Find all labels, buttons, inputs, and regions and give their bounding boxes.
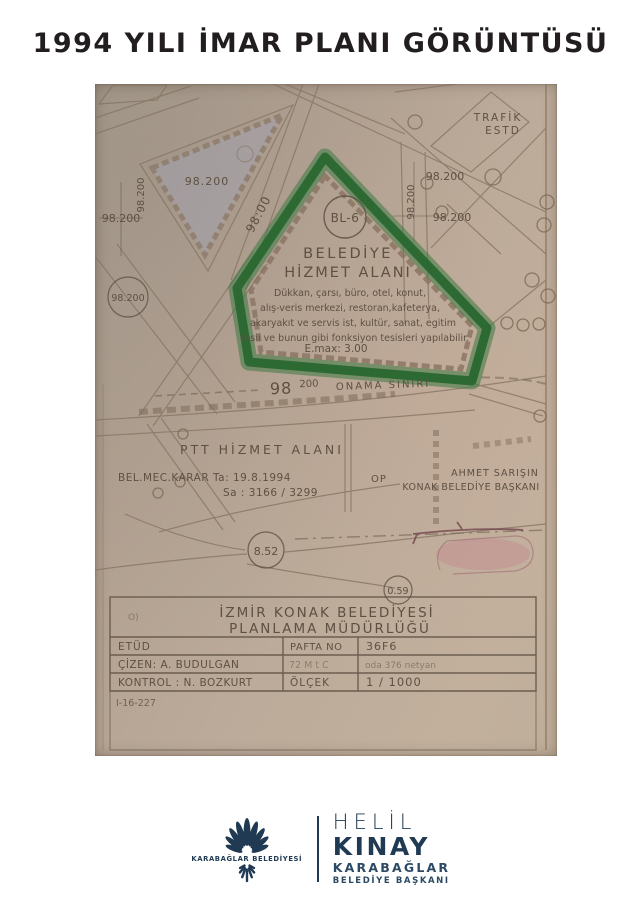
- titleblock-header2: PLANLAMA MÜDÜRLÜĞÜ: [229, 619, 431, 637]
- onama-elevation-big: 98: [270, 378, 293, 398]
- titleblock-pafta-label: PAFTA NO: [290, 642, 343, 653]
- titleblock-pafta-value: 36F6: [366, 640, 397, 653]
- zone-code: BL-6: [331, 211, 360, 225]
- municipality-name: KARABAĞLAR BELEDİYESİ: [191, 855, 302, 863]
- zoning-plan-drawing: BL-6 BELEDİYE HİZMET ALANI Dükkan, çarsı…: [95, 84, 557, 756]
- titleblock-header1: İZMİR KONAK BELEDİYESİ: [219, 603, 434, 621]
- trafik-line2: ESTD: [485, 125, 521, 137]
- zone-body-line3: akaryakıt ve servis ist, kultür, sanat, …: [250, 318, 456, 329]
- op-label: OP: [371, 474, 387, 485]
- titleblock-right-note: oda 376 netyan: [365, 661, 436, 671]
- ptt-sayi: Sa : 3166 / 3299: [223, 487, 318, 499]
- municipality-logo: KARABAĞLAR BELEDİYESİ: [191, 814, 303, 884]
- titleblock-etud: ETÜD: [118, 640, 151, 653]
- mayor-brand-text: HELİL KINAY KARABAĞLAR BELEDİYE BAŞKANI: [333, 812, 450, 885]
- spot-height-059: 0.59: [387, 586, 408, 597]
- spot-height-852: 8.52: [254, 545, 279, 558]
- title-block: İZMİR KONAK BELEDİYESİ PLANLAMA MÜDÜRLÜĞ…: [110, 597, 536, 750]
- ptt-block: PTT HİZMET ALANI BEL.MEC.KARAR Ta: 19.8.…: [118, 442, 387, 499]
- titleblock-olcek-label: ÖLÇEK: [290, 676, 330, 689]
- ptt-karar: BEL.MEC.KARAR Ta: 19.8.1994: [118, 472, 291, 484]
- mayor-district: KARABAĞLAR: [333, 862, 450, 875]
- logo-petal-fan-icon: [201, 814, 293, 854]
- elevation-label: 98.200: [433, 211, 472, 224]
- titleblock-mid-note: 72 M t C: [289, 660, 329, 671]
- elevation-label: 98.200: [136, 178, 147, 213]
- mayor-first-name: HELİL: [333, 812, 450, 833]
- mayor-title: KONAK BELEDİYE BAŞKANI: [402, 482, 539, 493]
- zoning-plan-photo: BL-6 BELEDİYE HİZMET ALANI Dükkan, çarsı…: [95, 84, 557, 756]
- elevation-label: 98.200: [406, 185, 417, 220]
- mayor-block: AHMET SARIŞIN KONAK BELEDİYE BAŞKANI: [402, 468, 539, 493]
- titleblock-kontrol: KONTROL : N. BOZKURT: [118, 677, 253, 689]
- mayor-name: AHMET SARIŞIN: [451, 468, 539, 479]
- onama-elevation-small: 200: [299, 379, 318, 391]
- page-title: 1994 YILI İMAR PLANI GÖRÜNTÜSÜ: [0, 28, 641, 59]
- trafik-line1: TRAFİK: [473, 111, 523, 124]
- zone-body-line2: alış-veris merkezi, restoran,kafeterya,: [260, 303, 440, 314]
- elevation-label: 98.200: [426, 170, 465, 183]
- onama-label: ONAMA SINIRI: [336, 379, 431, 393]
- footer-brand: KARABAĞLAR BELEDİYESİ HELİL KINAY KARABA…: [0, 812, 641, 885]
- elevation-label: 98.200: [185, 175, 230, 188]
- titleblock-stamp: O): [128, 613, 139, 623]
- mayor-last-name: KINAY: [333, 834, 450, 859]
- brand-divider: [317, 816, 319, 882]
- zone-title-line2: HİZMET ALANI: [284, 263, 412, 281]
- elevation-label: 98.200: [111, 293, 144, 304]
- titleblock-olcek-value: 1 / 1000: [366, 675, 422, 689]
- zone-emax: E.max: 3.00: [304, 343, 367, 355]
- zone-title-line1: BELEDİYE: [303, 244, 393, 262]
- titleblock-cizen: ÇİZEN: A. BUDULGAN: [118, 658, 239, 671]
- mayor-title-text: BELEDİYE BAŞKANI: [333, 877, 450, 886]
- pink-annotation: [413, 522, 533, 574]
- logo-ray-fan-icon: [215, 864, 279, 884]
- ptt-title: PTT HİZMET ALANI: [180, 442, 344, 457]
- titleblock-ref-code: I-16-227: [116, 698, 156, 709]
- trafik-labels: TRAFİK ESTD: [473, 111, 523, 137]
- zone-body-line1: Dükkan, çarsı, büro, otel, konut,: [274, 288, 426, 299]
